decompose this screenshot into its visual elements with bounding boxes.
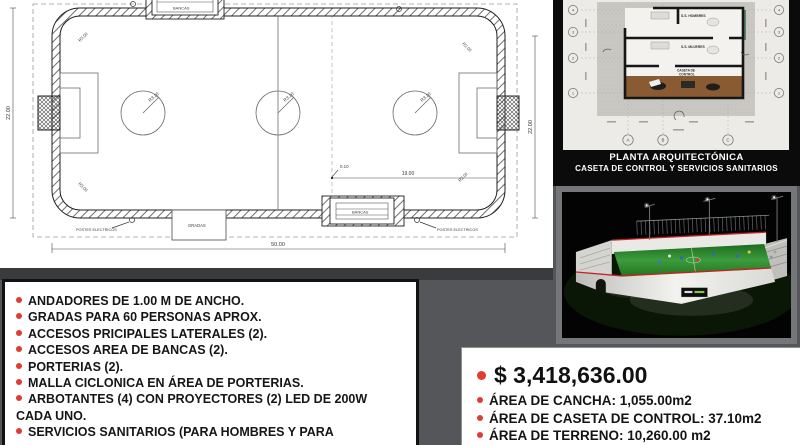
goal-right [497, 96, 519, 130]
dim-50: 50.00 [271, 242, 285, 248]
svg-text:1: 1 [778, 91, 780, 95]
dim-22-right: 22.00 [528, 120, 534, 134]
bullet-icon [16, 346, 22, 352]
svg-text:2: 2 [778, 56, 780, 60]
area-cancha: ÁREA DE CANCHA: 1,055.00m2 [477, 392, 800, 410]
site-plan-panel: R3.20 R3.20 R3.20 BANCAS [0, 0, 553, 270]
feature-item: GRADAS PARA 60 PERSONAS APROX. [16, 309, 406, 325]
caseta-building [625, 8, 746, 98]
features-panel: ANDADORES DE 1.00 M DE ANCHO. GRADAS PAR… [2, 279, 419, 445]
bullet-icon [16, 395, 22, 401]
area-caseta: ÁREA DE CASETA DE CONTROL: 37.10m2 [477, 410, 800, 428]
price-line: $ 3,418,636.00 [477, 361, 800, 389]
postes-left-label: POSTES ELECTRICOS [76, 228, 117, 232]
property-line [33, 4, 517, 237]
bench-box-top: BANCAS [146, 0, 224, 19]
flyer-page: R3.20 R3.20 R3.20 BANCAS [0, 0, 800, 445]
bancas-bottom-label: BANCAS [352, 210, 369, 215]
summary-panel: $ 3,418,636.00 ÁREA DE CANCHA: 1,055.00m… [461, 347, 800, 445]
postes-right-label: POSTES ELECTRICOS [437, 228, 478, 232]
bullet-icon [477, 397, 483, 403]
bancas-top-label: BANCAS [173, 6, 190, 11]
bullet-icon [477, 415, 483, 421]
floor-plan-image: S.S. HOMBRES S.S. MUJERES CASETA DE CONT… [563, 0, 789, 150]
floor-plan-panel: S.S. HOMBRES S.S. MUJERES CASETA DE CONT… [553, 0, 800, 186]
bullet-icon [16, 330, 22, 336]
bullet-icon [477, 432, 483, 438]
feature-item: MALLA CICLONICA EN ÁREA DE PORTERIAS. [16, 375, 406, 391]
area-terreno: ÁREA DE TERRENO: 10,260.00 m2 [477, 427, 800, 445]
svg-text:2: 2 [572, 56, 574, 60]
room-mujeres-label: S.S. MUJERES [681, 45, 705, 49]
feature-item: ARBOTANTES (4) CON PROYECTORES (2) LED D… [16, 391, 406, 424]
svg-text:A: A [627, 138, 630, 143]
dim-010: 0.10 [340, 164, 349, 169]
goal-left [38, 96, 60, 130]
svg-text:B: B [662, 138, 665, 143]
feature-item: ANDADORES DE 1.00 M DE ANCHO. [16, 293, 406, 309]
feature-item: PORTERIAS (2). [16, 359, 406, 375]
svg-text:1: 1 [572, 91, 574, 95]
gradas-box: GRADAS [172, 210, 226, 240]
corner-r-bl: R3.00 [77, 181, 89, 193]
electric-posts [112, 2, 436, 229]
svg-text:C: C [726, 138, 729, 143]
render-3d-panel [556, 186, 797, 344]
room-hombres-label: S.S. HOMBRES [681, 14, 706, 18]
bullet-icon [16, 428, 22, 434]
corner-r-br: R2.00 [457, 171, 469, 183]
dim-19: 19.00 [402, 171, 415, 177]
floor-plan-title: PLANTA ARQUITECTÓNICA CASETA DE CONTROL … [553, 152, 800, 174]
floor-plan-drawing: S.S. HOMBRES S.S. MUJERES CASETA DE CONT… [563, 0, 789, 150]
bullet-icon [16, 379, 22, 385]
feature-item: ACCESOS PRICIPALES LATERALES (2). [16, 326, 406, 342]
svg-text:3: 3 [778, 30, 780, 34]
corner-r-tr: R2.00 [461, 41, 473, 53]
floor-plan-title-line1: PLANTA ARQUITECTÓNICA [553, 152, 800, 164]
render-3d-image [562, 192, 791, 338]
dim-22-left: 22.00 [6, 106, 12, 120]
bench-box-bottom: BANCAS [322, 196, 404, 226]
room-caseta-label-2: CONTROL [679, 73, 695, 77]
svg-text:4: 4 [572, 8, 574, 12]
corner-r-tl: R3.00 [77, 31, 89, 43]
bullet-icon [16, 313, 22, 319]
floor-plan-title-line2: CASETA DE CONTROL Y SERVICIOS SANITARIOS [553, 164, 800, 174]
svg-text:3: 3 [572, 30, 574, 34]
bullet-icon [16, 363, 22, 369]
svg-text:4: 4 [778, 8, 780, 12]
feature-item: ACCESOS AREA DE BANCAS (2). [16, 342, 406, 358]
field-markings [60, 16, 497, 210]
feature-item: SERVICIOS SANITARIOS (PARA HOMBRES Y PAR… [16, 424, 406, 440]
gradas-label: GRADAS [188, 223, 206, 228]
price-value: $ 3,418,636.00 [494, 362, 647, 388]
site-plan-drawing: R3.20 R3.20 R3.20 BANCAS [0, 0, 553, 270]
bullet-icon [16, 297, 22, 303]
dim-point [331, 177, 333, 179]
bullet-icon [477, 371, 486, 380]
